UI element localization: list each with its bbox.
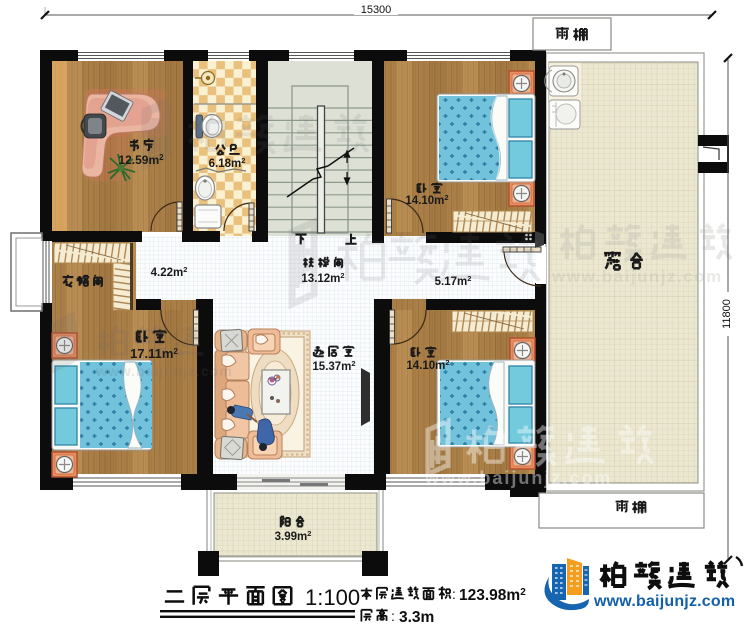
svg-text:17.11m2: 17.11m2 [130, 346, 178, 361]
svg-text:13.12m2: 13.12m2 [301, 271, 344, 285]
svg-text:12.59m2: 12.59m2 [118, 153, 164, 167]
svg-text::: : [452, 586, 456, 602]
svg-text:14.10m2: 14.10m2 [406, 358, 449, 372]
svg-text:www.baijunjz.com: www.baijunjz.com [95, 363, 233, 379]
svg-text:1:100: 1:100 [305, 585, 360, 610]
svg-text:www.baijunjz.com: www.baijunjz.com [424, 468, 612, 488]
svg-text:www.baijunjz.com: www.baijunjz.com [593, 593, 735, 610]
svg-text:15.37m2: 15.37m2 [312, 359, 355, 373]
svg-text:123.98m2: 123.98m2 [459, 587, 526, 604]
svg-text:14.10m2: 14.10m2 [405, 193, 448, 207]
svg-text:6.18m2: 6.18m2 [209, 156, 246, 170]
svg-text:15300: 15300 [361, 4, 392, 16]
svg-text:3.99m2: 3.99m2 [275, 529, 312, 543]
svg-text::: : [391, 608, 395, 624]
svg-text:4.22m2: 4.22m2 [151, 265, 188, 279]
svg-text:5.17m2: 5.17m2 [435, 274, 472, 288]
svg-text:www.baijunjz.com: www.baijunjz.com [551, 267, 723, 286]
svg-text:3.3m: 3.3m [399, 609, 434, 625]
svg-text:11800: 11800 [721, 299, 733, 329]
